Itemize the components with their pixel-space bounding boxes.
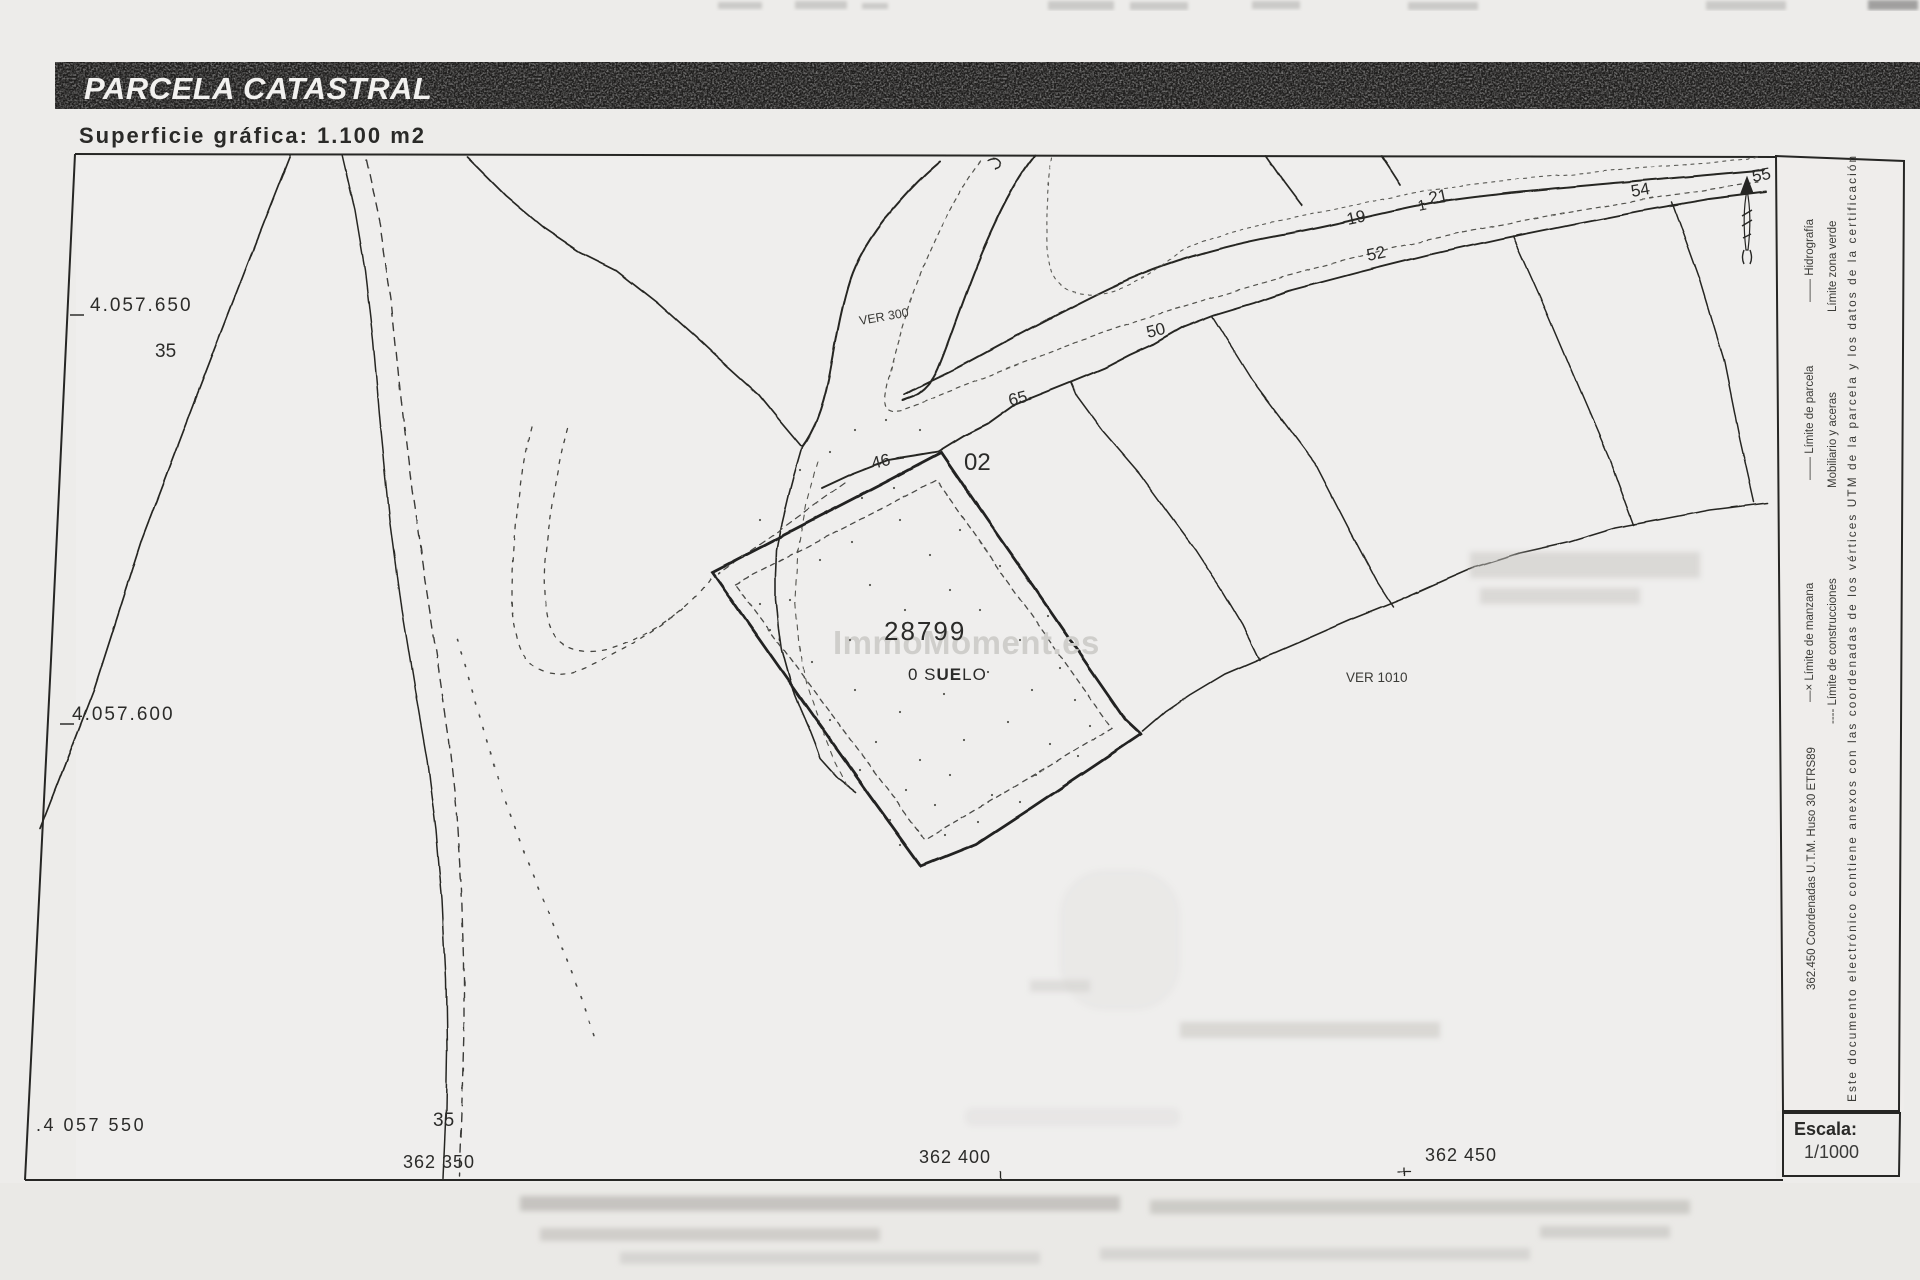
svg-text:52: 52 bbox=[1365, 242, 1387, 265]
svg-text:02: 02 bbox=[964, 449, 991, 476]
svg-text:35: 35 bbox=[433, 1110, 454, 1131]
svg-text:362 450: 362 450 bbox=[1425, 1145, 1497, 1165]
svg-text:—— Límite de parcela: —— Límite de parcela bbox=[1804, 365, 1816, 480]
svg-text:4.057.650: 4.057.650 bbox=[90, 295, 193, 316]
svg-text:55: 55 bbox=[1750, 164, 1772, 186]
svg-text:---- Límite de construcciones: ---- Límite de construcciones bbox=[1827, 578, 1839, 724]
svg-text:Este documento electrónico con: Este documento electrónico contiene anex… bbox=[1845, 154, 1859, 1102]
svg-text:.4 057 550: .4 057 550 bbox=[36, 1115, 146, 1135]
svg-text:Límite zona verde: Límite zona verde bbox=[1827, 221, 1839, 312]
svg-text:362 350: 362 350 bbox=[403, 1152, 475, 1172]
svg-text:4.057.600: 4.057.600 bbox=[72, 704, 175, 725]
svg-text:Escala:: Escala: bbox=[1794, 1119, 1857, 1139]
svg-text:28799: 28799 bbox=[884, 616, 966, 646]
svg-text:ImmoMoment.es: ImmoMoment.es bbox=[833, 624, 1100, 661]
svg-text:—— Hidrografía: —— Hidrografía bbox=[1804, 218, 1816, 302]
svg-text:21: 21 bbox=[1427, 185, 1449, 208]
svg-text:VER 1010: VER 1010 bbox=[1346, 670, 1408, 685]
svg-text:362 400: 362 400 bbox=[919, 1147, 991, 1167]
svg-text:PARCELA CATASTRAL: PARCELA CATASTRAL bbox=[84, 71, 432, 106]
svg-text:Superficie gráfica: 1.100 m2: Superficie gráfica: 1.100 m2 bbox=[79, 123, 426, 148]
svg-text:19: 19 bbox=[1345, 206, 1367, 229]
svg-text:54: 54 bbox=[1629, 179, 1651, 201]
svg-text:35: 35 bbox=[155, 341, 176, 362]
svg-text:0 SUELO: 0 SUELO bbox=[908, 665, 987, 684]
svg-text:1/1000: 1/1000 bbox=[1804, 1142, 1859, 1162]
svg-text:—× Límite de manzana: —× Límite de manzana bbox=[1804, 582, 1816, 702]
svg-text:362.450 Coordenadas U.T.M. Hus: 362.450 Coordenadas U.T.M. Huso 30 ETRS8… bbox=[1806, 747, 1818, 990]
svg-text:Mobiliario y aceras: Mobiliario y aceras bbox=[1827, 392, 1839, 488]
